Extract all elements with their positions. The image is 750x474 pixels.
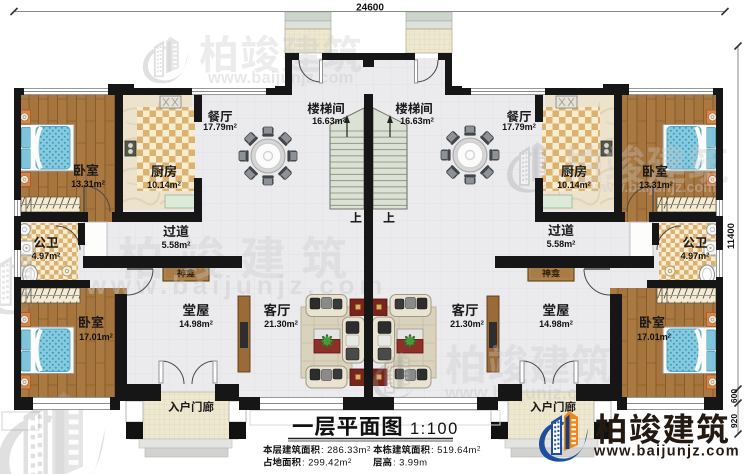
svg-text:4.97m2: 4.97m2	[32, 251, 62, 261]
svg-text:24600: 24600	[356, 3, 384, 14]
svg-text:17.01m2: 17.01m2	[79, 332, 114, 342]
svg-text:4.97m2: 4.97m2	[681, 251, 711, 261]
svg-text:: 299.42m2: : 299.42m2	[302, 458, 352, 469]
svg-text:10.14m2: 10.14m2	[557, 180, 592, 190]
svg-text:17.79m2: 17.79m2	[203, 122, 238, 132]
svg-text:21.30m2: 21.30m2	[264, 319, 299, 329]
svg-text:5.58m2: 5.58m2	[162, 240, 192, 250]
svg-text:: 519.64m2: : 519.64m2	[431, 445, 481, 456]
svg-text:17.01m2: 17.01m2	[637, 332, 672, 342]
svg-text:920: 920	[729, 414, 739, 428]
svg-text:: 3.99m: : 3.99m	[393, 458, 427, 469]
svg-text:www.baijunjz.com: www.baijunjz.com	[593, 444, 740, 460]
svg-text:13.31m2: 13.31m2	[639, 180, 674, 190]
svg-text:600: 600	[729, 389, 739, 403]
svg-text:16.63m2: 16.63m2	[312, 116, 347, 126]
svg-text:: 286.33m2: : 286.33m2	[321, 445, 371, 456]
svg-text:14.98m2: 14.98m2	[539, 319, 574, 329]
svg-text:1:100: 1:100	[410, 420, 459, 438]
svg-text:10.14m2: 10.14m2	[147, 180, 182, 190]
svg-text:13.31m2: 13.31m2	[71, 179, 106, 189]
svg-text:17.79m2: 17.79m2	[502, 122, 537, 132]
svg-text:www.baijunjz.com: www.baijunjz.com	[207, 69, 354, 87]
svg-text:21.30m2: 21.30m2	[450, 319, 485, 329]
svg-text:5.58m2: 5.58m2	[547, 239, 577, 249]
svg-text:14.98m2: 14.98m2	[179, 319, 214, 329]
svg-text:16.63m2: 16.63m2	[400, 116, 435, 126]
svg-text:11400: 11400	[726, 223, 737, 249]
svg-text:www.baijunjz.com: www.baijunjz.com	[85, 270, 387, 300]
